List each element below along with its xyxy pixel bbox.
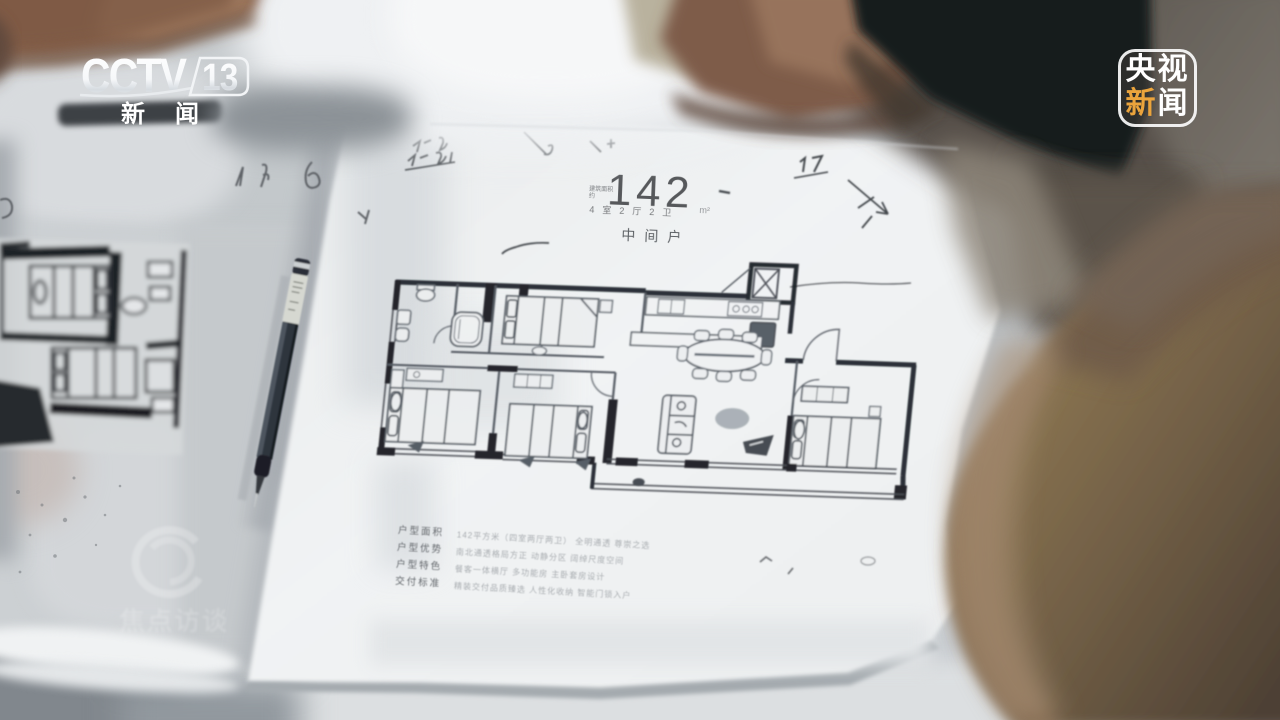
svg-text:新闻: 新闻 [121, 100, 229, 128]
svg-text:13: 13 [202, 56, 237, 98]
